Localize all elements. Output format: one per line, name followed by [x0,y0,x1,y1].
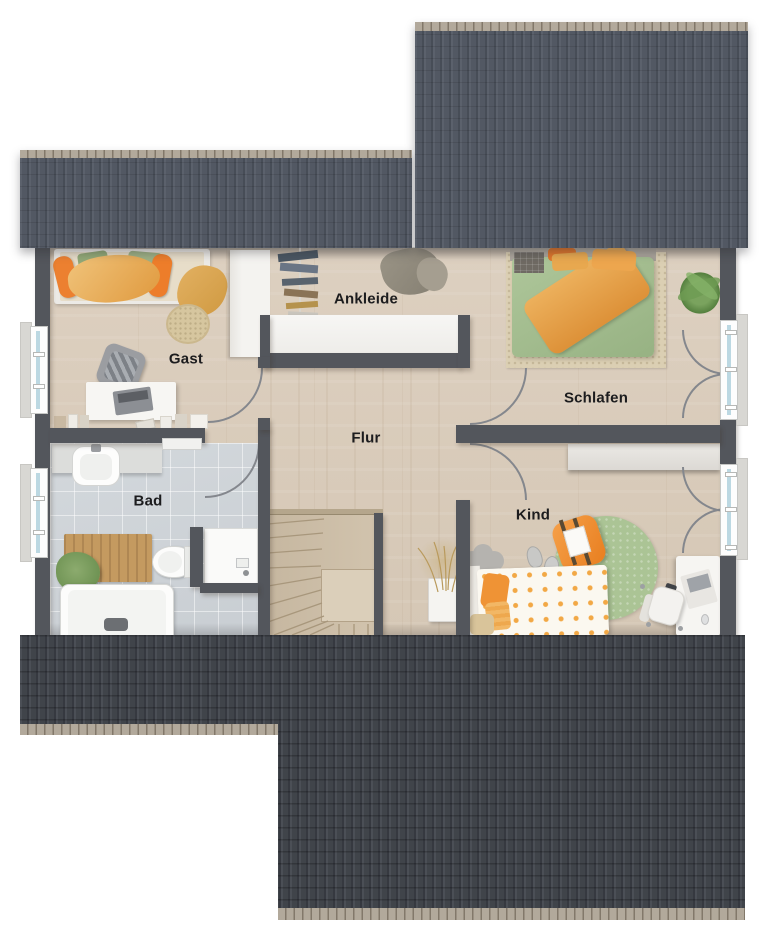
window-gast-glass [36,331,40,409]
bad-shower-handle [243,570,249,576]
wall-schlafen-kind [456,425,720,443]
room-label-gast: Gast [169,351,203,368]
bad-sink-basin [80,454,112,480]
window-bad-handle-2 [33,530,45,535]
window-schlafen-handle-2 [725,367,737,372]
wall-flur-kind [456,500,470,635]
roof-ridge-bottom-left [20,724,278,735]
wall-ankleide-south [262,353,460,368]
roof-top-left [20,150,412,248]
gast-books-6 [190,414,208,429]
window-bad-handle-1 [33,496,45,501]
roof-ridge-top-right [415,22,748,31]
window-kind-handle-3 [725,545,737,550]
window-bad-glass [36,473,40,553]
staircase-right-rail [374,513,383,635]
bad-shower-drain [236,558,249,568]
staircase-void [321,569,377,622]
bad-toilet-seat [158,551,182,573]
roof-top-right [415,22,748,248]
wall-shower-south [200,583,258,593]
window-schlafen-handle-3 [725,405,737,410]
schlafen-pillow-orange-1 [551,252,588,271]
room-label-ankleide: Ankleide [334,291,398,308]
roof-ridge-bottom-right [278,908,745,920]
wall-ankleide-cap-left [260,315,270,357]
roof-bottom-tiles [20,635,745,920]
wall-shower-west [190,527,203,587]
ankleide-cabinet [266,315,462,357]
flur-planter-vase [428,578,458,622]
wall-ankleide-cap-right [458,315,470,368]
schlafen-crate [514,252,544,273]
kind-pillow-knit [470,614,494,635]
window-schlafen-handle-1 [725,330,737,335]
room-label-kind: Kind [516,507,550,524]
kind-chair-wheel-3 [640,584,645,589]
room-label-schlafen: Schlafen [564,390,628,407]
wall-exterior-left [35,248,50,635]
bad-shower-tray [204,528,258,585]
kind-mouse [701,614,709,625]
gast-round-rug [166,304,210,344]
wall-exterior-right [720,248,736,635]
window-kind-handle-1 [725,472,737,477]
bad-wall-shelf [162,438,202,450]
window-kind-handle-2 [725,507,737,512]
wall-gast-east-lower [258,418,270,430]
wall-flur-bad [258,428,270,635]
wall-gast-east-upper [258,357,270,368]
room-label-flur: Flur [351,430,380,447]
bad-bathtub-faucet [104,618,128,631]
window-gast-handle-2 [33,384,45,389]
bad-sink-faucet [91,444,101,452]
roof-bottom [20,635,745,920]
staircase-top-rail [266,509,383,515]
roof-ridge-top-left [20,150,412,158]
floor-plan: Gast Ankleide Schlafen Flur Bad Kind [0,0,775,945]
schlafen-pillow-orange-2 [591,248,636,271]
kind-chair-wheel-1 [646,622,651,627]
window-gast-handle-1 [33,352,45,357]
room-label-bad: Bad [134,493,163,510]
kind-chair-wheel-2 [678,626,683,631]
